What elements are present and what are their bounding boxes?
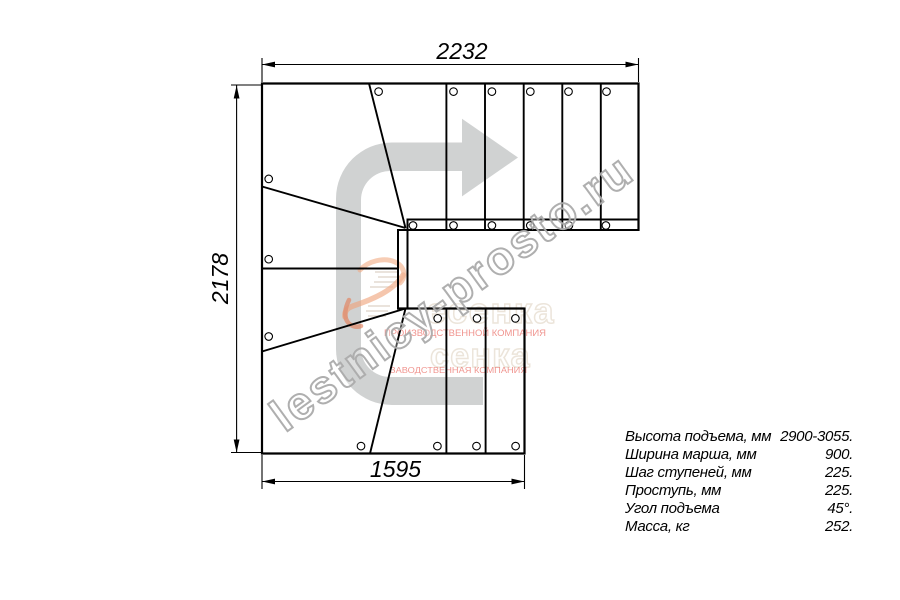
svg-text:225.: 225. [824, 482, 853, 499]
svg-text:Проступь, мм: Проступь, мм [625, 482, 721, 499]
svg-text:45°.: 45°. [827, 500, 853, 517]
svg-text:1595: 1595 [370, 456, 421, 482]
svg-text:900.: 900. [825, 446, 853, 463]
svg-text:252.: 252. [824, 518, 853, 535]
svg-text:2178: 2178 [207, 253, 233, 305]
svg-text:Угол подъема: Угол подъема [624, 500, 720, 517]
svg-text:ЗАВОДСТВЕННАЯ КОМПАНИЯ: ЗАВОДСТВЕННАЯ КОМПАНИЯ [390, 365, 527, 375]
svg-text:225.: 225. [824, 464, 853, 481]
svg-text:Высота подъема, мм: Высота подъема, мм [625, 428, 771, 445]
svg-text:2232: 2232 [435, 38, 487, 64]
svg-text:Шаг ступеней, мм: Шаг ступеней, мм [625, 464, 752, 481]
svg-text:Масса, кг: Масса, кг [625, 518, 690, 535]
svg-text:2900-3055.: 2900-3055. [779, 428, 853, 445]
svg-text:Ширина марша, мм: Ширина марша, мм [625, 446, 756, 463]
